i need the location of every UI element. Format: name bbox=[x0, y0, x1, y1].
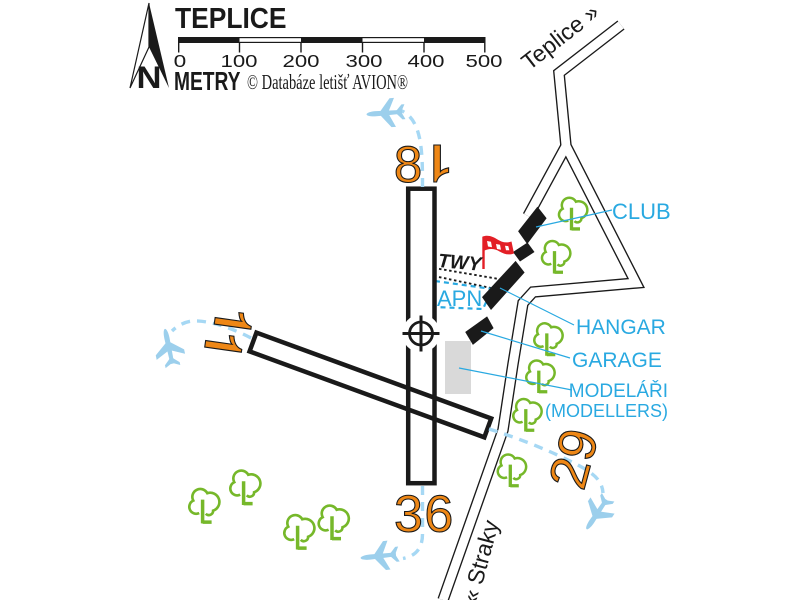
svg-text:300: 300 bbox=[346, 51, 383, 71]
svg-text:GARAGE: GARAGE bbox=[572, 349, 662, 372]
svg-text:APN: APN bbox=[437, 286, 482, 311]
svg-text:36: 36 bbox=[394, 486, 455, 544]
svg-text:TEPLICE: TEPLICE bbox=[175, 3, 287, 35]
svg-text:N: N bbox=[137, 59, 162, 95]
svg-text:MODELÁŘI: MODELÁŘI bbox=[569, 380, 668, 402]
svg-text:8: 8 bbox=[394, 136, 422, 193]
svg-text:(MODELLERS): (MODELLERS) bbox=[545, 401, 668, 421]
svg-text:200: 200 bbox=[283, 51, 320, 71]
svg-text:METRY: METRY bbox=[174, 68, 241, 96]
svg-text:HANGAR: HANGAR bbox=[576, 316, 666, 339]
svg-text:TWY: TWY bbox=[437, 250, 484, 276]
svg-text:CLUB: CLUB bbox=[612, 199, 671, 224]
svg-text:400: 400 bbox=[408, 51, 445, 71]
svg-text:500: 500 bbox=[466, 51, 503, 71]
svg-text:© Databáze letišť AVION®: © Databáze letišť AVION® bbox=[247, 70, 408, 94]
